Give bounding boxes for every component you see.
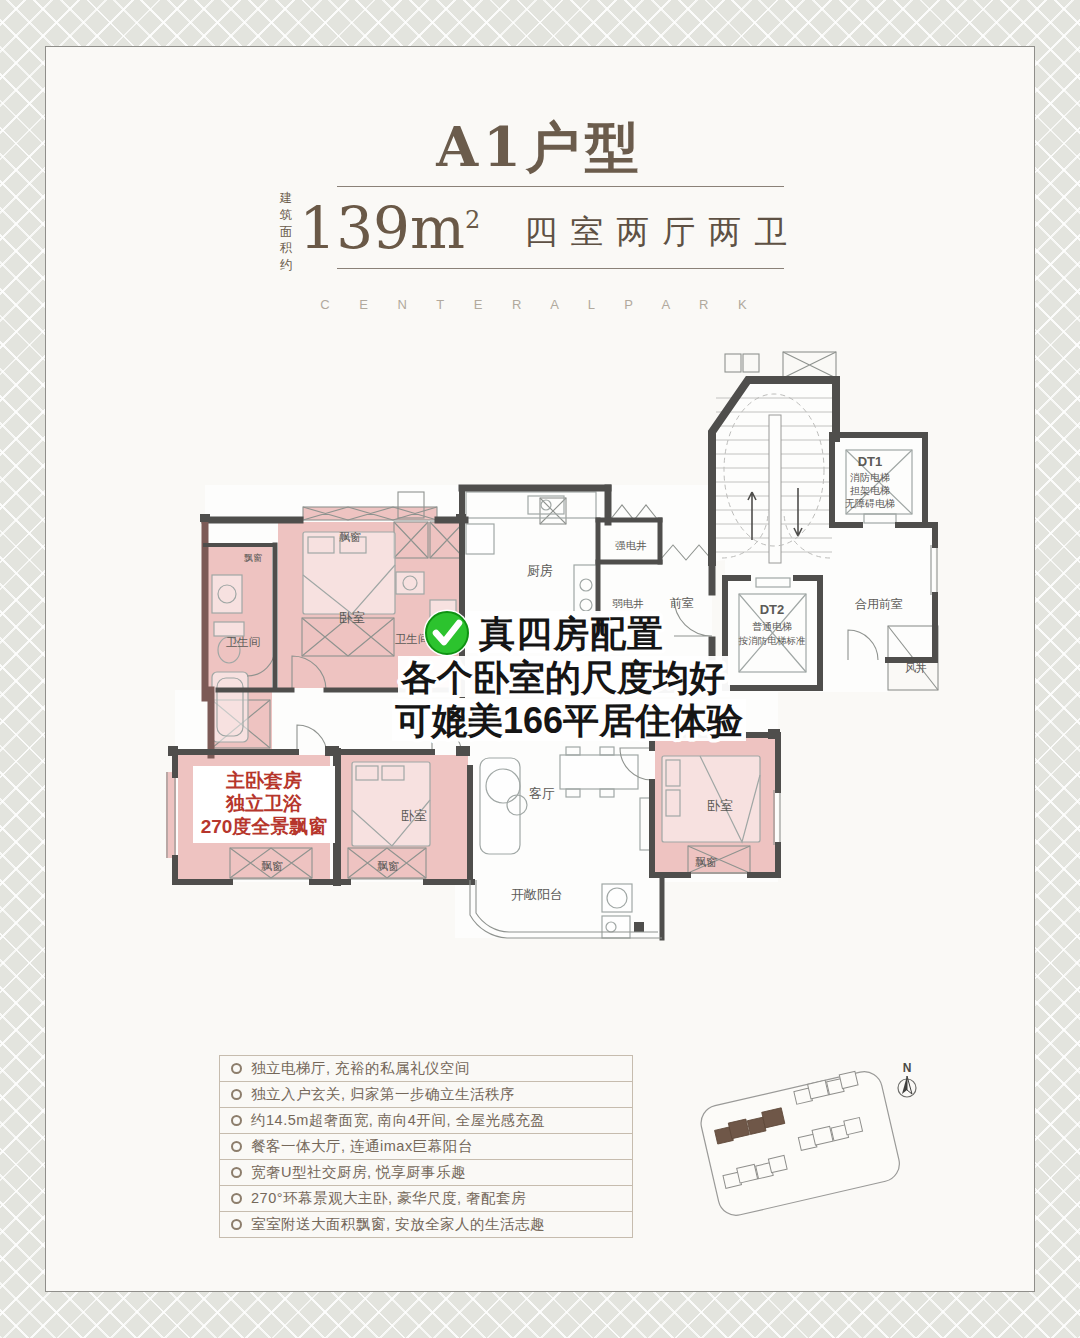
- ring-bullet-icon: [231, 1193, 242, 1204]
- overlay-line1: 真四房配置: [478, 613, 664, 654]
- bay-window-label: 飘窗: [377, 860, 399, 872]
- floor-plan: 飘窗 飘窗 卧室 卫生间 卫生间 厨房 强电井 弱电井 前室 合用前室 风井 D…: [150, 340, 950, 952]
- list-item: 270°环幕景观大主卧, 豪华尺度, 奢配套房: [219, 1185, 633, 1212]
- list-item: 独立电梯厅, 充裕的私属礼仪空间: [219, 1055, 633, 1082]
- svg-text:无障碍电梯: 无障碍电梯: [845, 498, 895, 509]
- divider-line: [337, 268, 784, 269]
- svg-text:按消防电梯标准: 按消防电梯标准: [738, 635, 806, 646]
- ring-bullet-icon: [231, 1167, 242, 1178]
- list-item: 独立入户玄关, 归家第一步确立生活秩序: [219, 1081, 633, 1108]
- north-compass-icon: N: [898, 1061, 916, 1097]
- overlay-line2: 各个卧室的尺度均好: [400, 657, 725, 698]
- bay-window-label: 飘窗: [261, 860, 283, 872]
- ring-bullet-icon: [231, 1219, 242, 1230]
- balcony-label: 开敞阳台: [511, 887, 563, 902]
- svg-text:担架电梯: 担架电梯: [850, 485, 890, 496]
- shared-vestibule-label: 合用前室: [855, 597, 903, 611]
- list-item: 宽奢U型社交厨房, 悦享厨事乐趣: [219, 1159, 633, 1186]
- vestibule-label: 前室: [670, 596, 694, 610]
- svg-text:N: N: [903, 1061, 912, 1075]
- site-plan: N: [688, 1050, 933, 1235]
- layout-text: 四室两厅两卫: [524, 210, 800, 255]
- kitchen-label: 厨房: [527, 563, 553, 578]
- list-item: 约14.5m超奢面宽, 南向4开间, 全屋光感充盈: [219, 1107, 633, 1134]
- dt1-label: DT1: [858, 454, 883, 469]
- poster-page: A1户型 建 筑 面积约 139m2 四室两厅两卫 C E N T E R A …: [0, 0, 1080, 1338]
- area-row: 建 筑 面积约 139m2 四室两厅两卫: [280, 194, 800, 262]
- bathroom-label: 卫生间: [226, 636, 261, 648]
- bay-window-label: 飘窗: [244, 553, 262, 563]
- bedroom-label: 卧室: [707, 798, 733, 813]
- area-label: 建 筑 面积约: [280, 190, 296, 274]
- subtitle: C E N T E R A L P A R K: [0, 297, 1080, 312]
- ring-bullet-icon: [231, 1063, 242, 1074]
- ring-bullet-icon: [231, 1089, 242, 1100]
- svg-text:普通电梯: 普通电梯: [752, 621, 792, 632]
- bay-window-label: 飘窗: [339, 531, 361, 543]
- svg-text:消防电梯: 消防电梯: [850, 472, 890, 483]
- list-item: 餐客一体大厅, 连通imax巨幕阳台: [219, 1133, 633, 1160]
- check-circle-icon: [424, 610, 471, 657]
- living-room-label: 客厅: [529, 786, 555, 801]
- master-suite-callout: 主卧套房 独立卫浴 270度全景飘窗: [193, 766, 335, 843]
- bedroom-label: 卧室: [339, 610, 365, 625]
- divider-line: [337, 186, 784, 187]
- strong-shaft-label: 强电井: [615, 539, 647, 551]
- site-boundary: [697, 1066, 903, 1219]
- ring-bullet-icon: [231, 1115, 242, 1126]
- overlay-line3: 可媲美166平居住体验: [395, 700, 744, 741]
- ring-bullet-icon: [231, 1141, 242, 1152]
- bay-window-label: 飘窗: [695, 856, 717, 868]
- bedroom-label: 卧室: [401, 808, 427, 823]
- wind-shaft-label: 风井: [905, 662, 927, 674]
- list-item: 室室附送大面积飘窗, 安放全家人的生活志趣: [219, 1211, 633, 1238]
- feature-list: 独立电梯厅, 充裕的私属礼仪空间 独立入户玄关, 归家第一步确立生活秩序 约14…: [219, 1056, 633, 1238]
- area-value: 139m2: [299, 199, 480, 257]
- dt2-label: DT2: [760, 602, 785, 617]
- page-title: A1户型: [0, 112, 1080, 185]
- weak-shaft-label: 弱电井: [612, 597, 644, 609]
